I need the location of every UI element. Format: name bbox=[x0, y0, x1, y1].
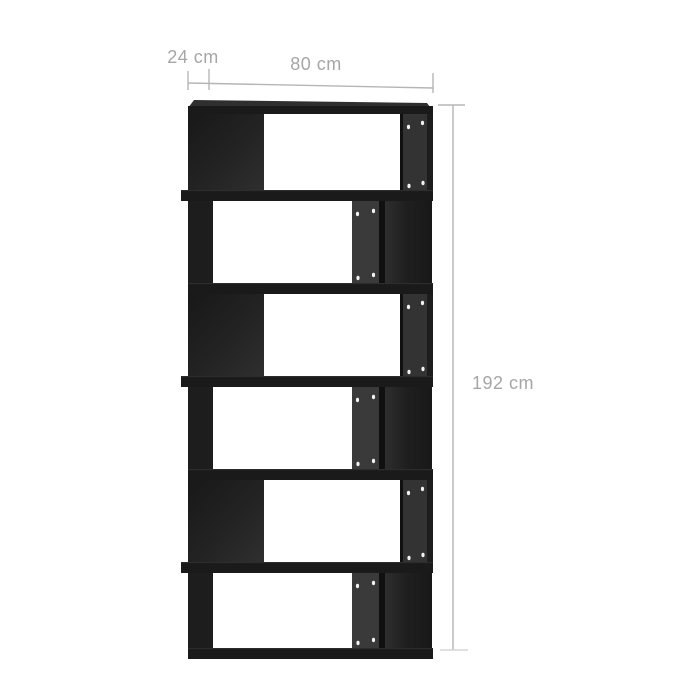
partition-panel-inner bbox=[352, 386, 379, 469]
width-dimension-line bbox=[188, 83, 433, 88]
shelf-board-front bbox=[181, 191, 433, 201]
shelf-pin-hole bbox=[421, 367, 424, 371]
shelf-pin-hole bbox=[407, 370, 410, 374]
side-wall-front bbox=[427, 293, 433, 376]
shelf-pin-hole bbox=[421, 121, 424, 125]
height-dimension-label: 192 cm bbox=[472, 373, 534, 393]
product-dimension-image: 24 cm 80 cm 192 cm bbox=[0, 0, 700, 700]
depth-dimension-label: 24 cm bbox=[167, 47, 219, 67]
shelf-board-front bbox=[188, 284, 433, 294]
shelf-pin-hole bbox=[372, 638, 375, 642]
bookcase-dimension-diagram: 24 cm 80 cm 192 cm bbox=[0, 0, 700, 700]
compartment-interior bbox=[188, 293, 264, 376]
shelf-board-front bbox=[188, 649, 433, 659]
side-wall-front bbox=[188, 572, 213, 648]
shelf-pin-hole bbox=[372, 459, 375, 463]
shelf-pin-hole bbox=[421, 301, 424, 305]
shelf-pin-hole bbox=[372, 581, 375, 585]
shelf-board-front bbox=[181, 377, 433, 387]
shelf-pin-hole bbox=[407, 305, 410, 309]
bookcase-illustration bbox=[181, 100, 433, 659]
compartment-interior bbox=[188, 479, 264, 562]
partition-front-edge bbox=[379, 572, 385, 648]
partition-front-edge bbox=[379, 386, 385, 469]
shelf-board-front bbox=[181, 563, 433, 573]
side-panel-inner bbox=[403, 293, 427, 376]
compartment-interior bbox=[385, 386, 432, 469]
panel-front-edge bbox=[400, 479, 403, 562]
shelf-pin-hole bbox=[356, 276, 359, 280]
shelf-pin-hole bbox=[407, 184, 410, 188]
side-wall-front bbox=[427, 113, 433, 190]
shelf-pin-hole bbox=[356, 462, 359, 466]
shelf-pin-hole bbox=[356, 584, 359, 588]
shelf-pin-hole bbox=[372, 273, 375, 277]
shelf-pin-hole bbox=[421, 553, 424, 557]
partition-panel-inner bbox=[352, 200, 379, 283]
compartment-interior bbox=[385, 572, 432, 648]
shelf-pin-hole bbox=[372, 209, 375, 213]
shelf-pin-hole bbox=[356, 212, 359, 216]
shelf-pin-hole bbox=[356, 641, 359, 645]
shelf-pin-hole bbox=[372, 395, 375, 399]
shelf-pin-hole bbox=[356, 398, 359, 402]
shelf-pin-hole bbox=[407, 125, 410, 129]
shelf-pin-hole bbox=[421, 181, 424, 185]
shelf-pin-hole bbox=[421, 487, 424, 491]
panel-front-edge bbox=[400, 113, 403, 190]
compartment-interior bbox=[188, 113, 264, 190]
partition-front-edge bbox=[379, 200, 385, 283]
panel-front-edge bbox=[400, 293, 403, 376]
shelf-pin-hole bbox=[407, 556, 410, 560]
shelf-board-front bbox=[188, 470, 433, 480]
side-panel-inner bbox=[403, 479, 427, 562]
width-dimension-label: 80 cm bbox=[290, 54, 342, 74]
side-wall-front bbox=[188, 386, 213, 469]
side-wall-front bbox=[427, 479, 433, 562]
side-wall-front bbox=[188, 200, 213, 283]
top-board-front bbox=[188, 106, 433, 114]
compartment-interior bbox=[385, 200, 432, 283]
shelf-pin-hole bbox=[407, 491, 410, 495]
